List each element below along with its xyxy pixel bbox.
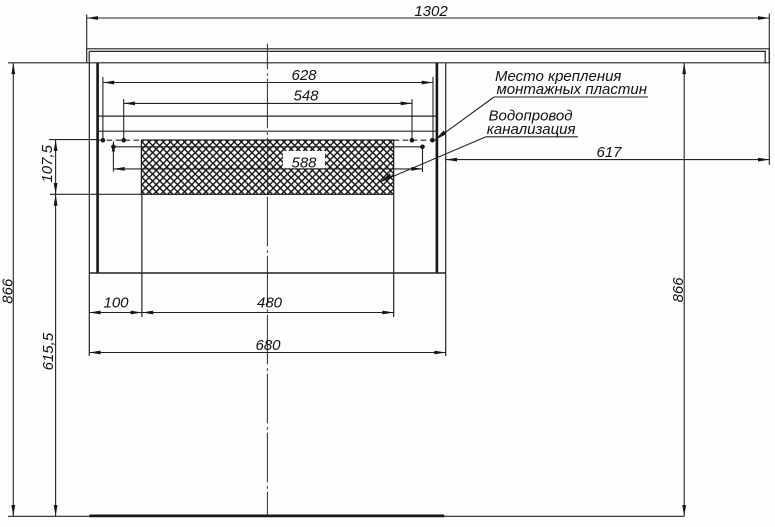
svg-text:100: 100 — [103, 295, 129, 312]
svg-text:628: 628 — [291, 67, 317, 84]
svg-text:480: 480 — [257, 295, 283, 312]
svg-text:680: 680 — [255, 337, 281, 354]
svg-text:866: 866 — [0, 278, 17, 304]
svg-text:615,5: 615,5 — [40, 332, 57, 370]
svg-text:866: 866 — [670, 277, 687, 303]
svg-text:588: 588 — [291, 154, 317, 171]
svg-text:617: 617 — [596, 144, 622, 161]
svg-text:канализация: канализация — [487, 121, 576, 138]
svg-text:107,5: 107,5 — [39, 144, 56, 182]
svg-text:монтажных пластин: монтажных пластин — [497, 81, 647, 98]
svg-text:1302: 1302 — [414, 3, 448, 20]
svg-text:548: 548 — [293, 88, 319, 105]
